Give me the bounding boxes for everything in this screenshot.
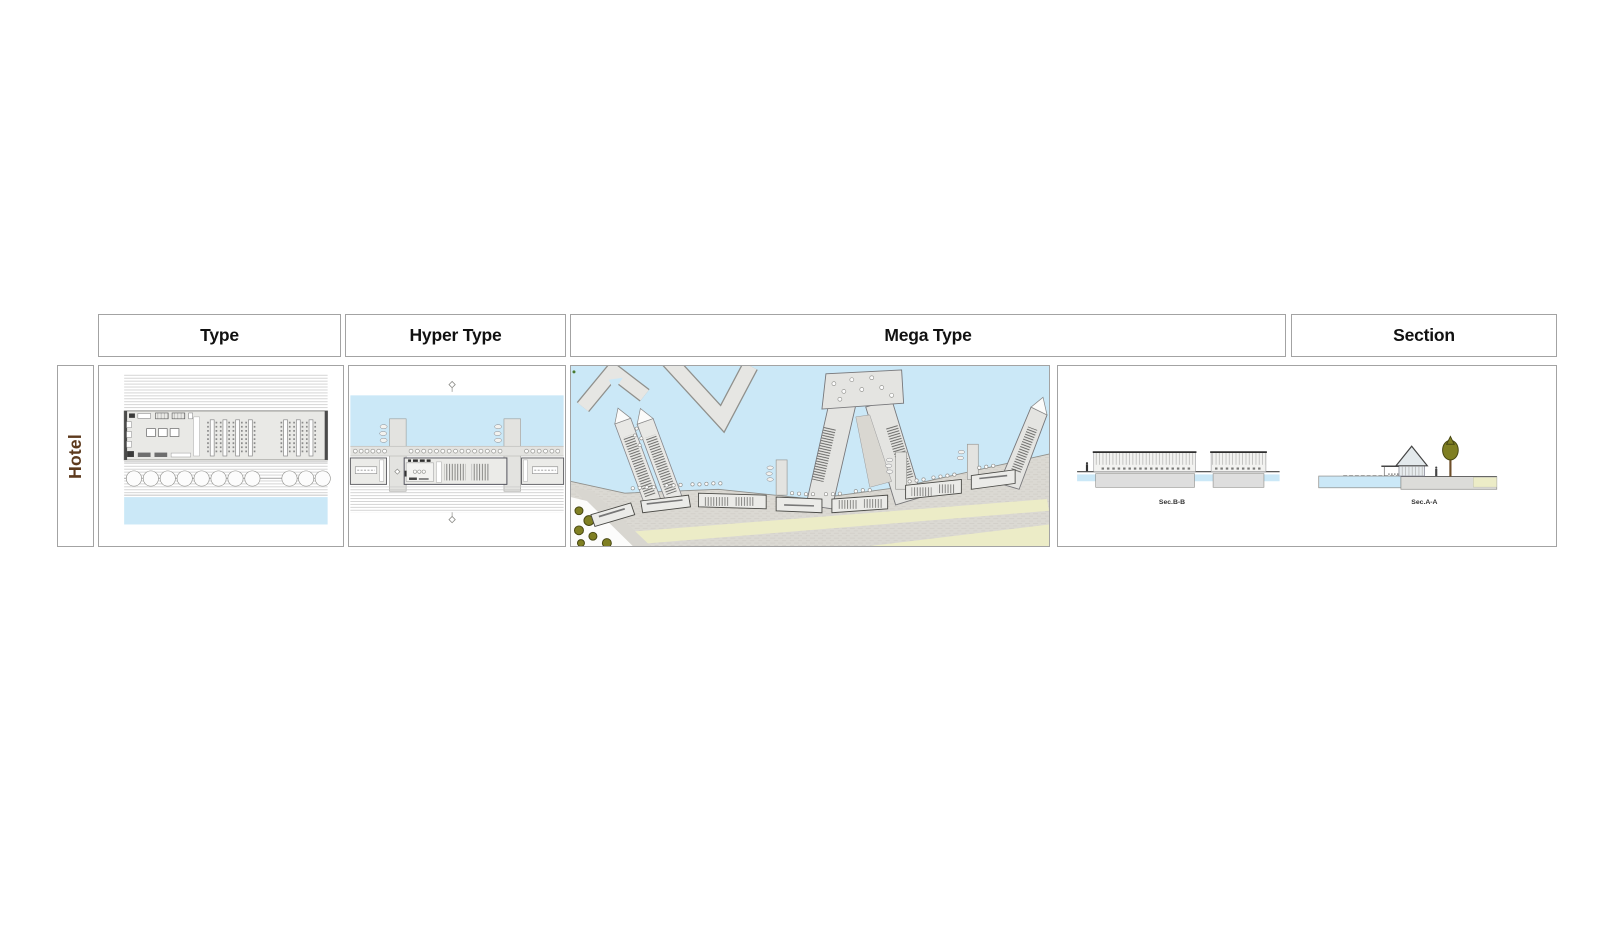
hotel-buildings-row	[350, 458, 563, 484]
hyper-type-plan-drawing	[349, 366, 565, 546]
boardwalk-colonnade	[124, 462, 330, 495]
tree-icon	[574, 526, 583, 535]
person-figure	[1086, 464, 1088, 471]
tree-icon	[602, 539, 611, 546]
tree-icon	[577, 540, 584, 546]
hotel-building-plan	[124, 411, 327, 460]
house-section	[1381, 446, 1427, 476]
person-figure	[1435, 469, 1437, 476]
row-header-hotel: Hotel	[57, 365, 94, 547]
type-floor-plan-drawing	[99, 366, 343, 546]
waterfront-colonnade	[350, 446, 563, 456]
cell-mega-type-siteplan	[570, 365, 1050, 547]
mega-type-site-plan-drawing	[571, 366, 1049, 546]
typology-board: Type Hyper Type Mega Type Section Hotel	[0, 0, 1600, 930]
section-a-a-drawing: Sec.A-A	[1319, 436, 1497, 505]
water-band	[124, 497, 327, 524]
column-header-type: Type	[98, 314, 341, 357]
section-b-b-label: Sec.B-B	[1159, 499, 1185, 506]
tree-icon	[1443, 436, 1459, 476]
column-header-section: Section	[1291, 314, 1557, 357]
cell-type-plan	[98, 365, 344, 547]
cell-sections: Sec.B-B	[1057, 365, 1557, 547]
section-marker-bottom-icon	[449, 512, 455, 522]
column-header-mega-type: Mega Type	[570, 314, 1286, 357]
column-header-hyper-type: Hyper Type	[345, 314, 566, 357]
sections-drawing: Sec.B-B	[1058, 366, 1556, 546]
tree-icon	[589, 532, 597, 540]
cell-hyper-type-plan	[348, 365, 566, 547]
tree-icon	[575, 507, 583, 515]
row-label-text: Hotel	[65, 434, 86, 479]
esplanade-stripes	[124, 374, 327, 411]
beach-hatch-band	[350, 486, 563, 512]
dining-tables-group-2	[281, 420, 315, 456]
section-a-a-label: Sec.A-A	[1411, 499, 1437, 506]
section-marker-top-icon	[449, 381, 455, 391]
section-b-b-drawing: Sec.B-B	[1077, 452, 1280, 506]
